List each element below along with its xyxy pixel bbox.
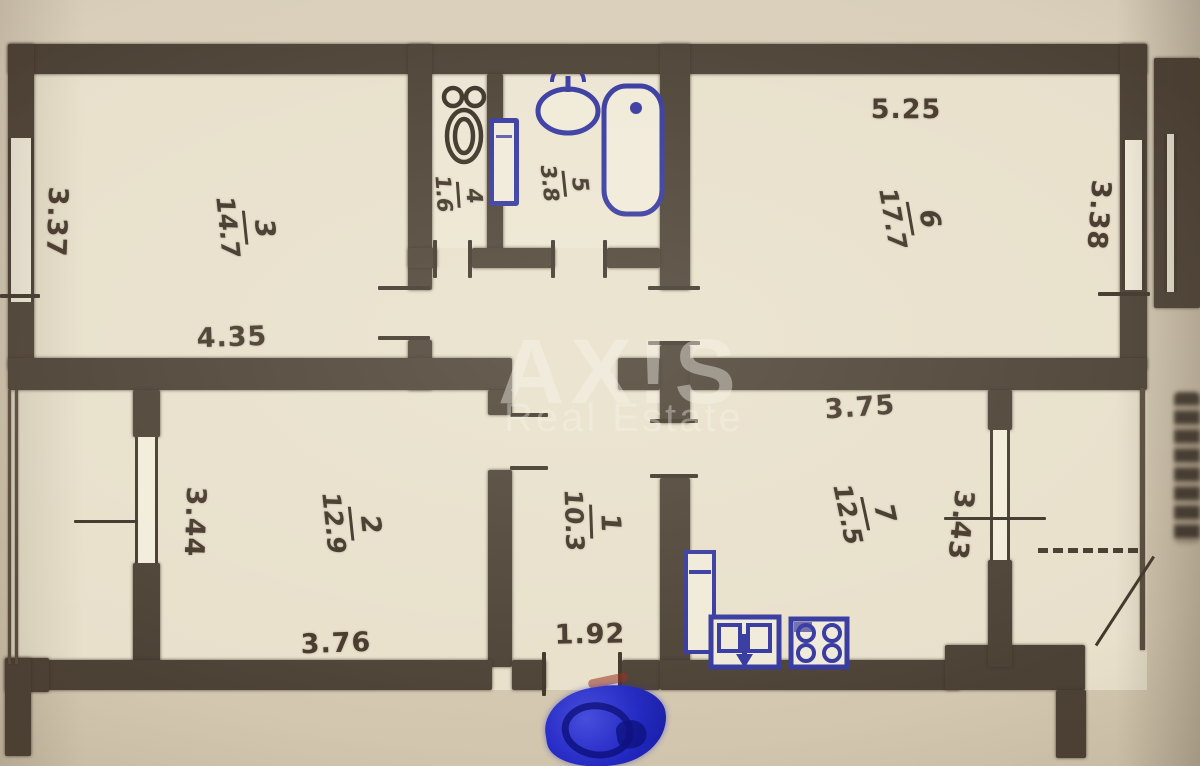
right-balcony-rail xyxy=(1140,388,1145,650)
watermark-subtitle: Real Estate xyxy=(504,398,744,438)
room-label-6: 6 17.7 xyxy=(871,187,950,250)
room-label-2: 2 12.9 xyxy=(315,491,390,557)
window-room6 xyxy=(1122,140,1145,290)
toilet-icon xyxy=(438,84,490,170)
kitchen-sink-icon xyxy=(708,614,782,672)
entrance-stamp xyxy=(539,677,672,766)
room-area: 10.3 xyxy=(558,489,589,553)
washbasin-icon xyxy=(532,74,604,136)
balcony-dashed-line xyxy=(1038,548,1138,553)
room-number: 1 xyxy=(589,504,626,541)
room-number: 4 xyxy=(456,182,487,209)
kitchen-right-wall-upper xyxy=(988,390,1012,430)
bottom-right-wall-drop xyxy=(1056,690,1086,758)
dim-room6-top: 5.25 xyxy=(846,96,966,124)
stamp-scribble xyxy=(615,718,649,750)
door-tick-bath xyxy=(603,240,607,278)
balcony-bottom-wall xyxy=(945,645,1085,690)
dim-tick xyxy=(1098,292,1150,296)
door-tick-bath xyxy=(551,240,555,278)
room-number: 5 xyxy=(561,171,593,197)
room-area: 14.7 xyxy=(210,196,246,258)
dim-room2-bottom: 3.76 xyxy=(276,628,397,660)
edge-text-artifact xyxy=(1174,392,1200,544)
door-tick-room2 xyxy=(510,466,548,470)
corridor-top-wall-b xyxy=(472,248,555,268)
hall-bottom-wall-a xyxy=(512,660,546,690)
hall-left-wall-lower xyxy=(488,470,512,667)
room-area: 1.6 xyxy=(430,174,457,213)
mid-wall-right xyxy=(690,358,1147,390)
bottom-left-wall-drop xyxy=(5,658,31,756)
room-number: 7 xyxy=(860,495,904,530)
dim-hall-bottom: 1.92 xyxy=(530,620,650,650)
kitchen-right-wall-lower xyxy=(988,560,1012,667)
corridor-top-wall-c xyxy=(607,248,660,268)
room-number: 2 xyxy=(348,506,388,542)
left-balcony-rail-outer xyxy=(8,390,11,664)
bathtub-icon xyxy=(600,82,666,218)
room-label-4: 4 1.6 xyxy=(428,161,488,229)
stove-icon xyxy=(788,616,850,670)
window-room2 xyxy=(135,437,158,563)
door-tick-kitchen xyxy=(650,474,698,478)
room2-left-wall-lower xyxy=(133,563,160,667)
door-tick-room6 xyxy=(648,286,700,290)
outer-wall-top xyxy=(8,44,1147,74)
room-area: 3.8 xyxy=(535,164,563,202)
window-room3 xyxy=(8,138,34,302)
dim-tick xyxy=(74,520,138,523)
door-tick-wc xyxy=(468,240,472,278)
mid-wall-left xyxy=(8,358,512,390)
window-kitchen-balcony xyxy=(990,430,1010,560)
adjacent-structure xyxy=(1154,58,1200,308)
room2-left-wall-upper xyxy=(133,390,160,437)
adjacent-window xyxy=(1164,134,1177,292)
room-label-1: 1 10.3 xyxy=(557,487,627,556)
room-number: 6 xyxy=(906,202,949,236)
dim-room3-bottom: 4.35 xyxy=(172,322,293,354)
dim-room2-left: 3.44 xyxy=(178,476,209,569)
dim-room6-right: 3.38 xyxy=(1081,168,1115,262)
floor-plan-photo: 3 14.7 4 1.6 5 3.8 6 17.7 2 12.9 1 10.3 … xyxy=(0,0,1200,766)
dim-tick xyxy=(0,294,40,298)
left-balcony-rail-inner xyxy=(15,390,18,664)
room-label-7: 7 12.5 xyxy=(825,481,907,546)
room-label-3: 3 14.7 xyxy=(209,195,284,261)
door-tick-room3 xyxy=(378,286,430,290)
room2-bottom-wall xyxy=(8,660,492,690)
door-tick-wc xyxy=(433,240,437,278)
room-number: 3 xyxy=(242,210,282,246)
dim-room3-left: 3.37 xyxy=(40,176,71,269)
room-area: 12.9 xyxy=(316,492,352,554)
door-tick-room3 xyxy=(378,336,430,340)
room-label-5: 5 3.8 xyxy=(533,151,596,217)
water-heater-icon xyxy=(489,118,519,206)
door-tick-entrance xyxy=(542,652,546,696)
